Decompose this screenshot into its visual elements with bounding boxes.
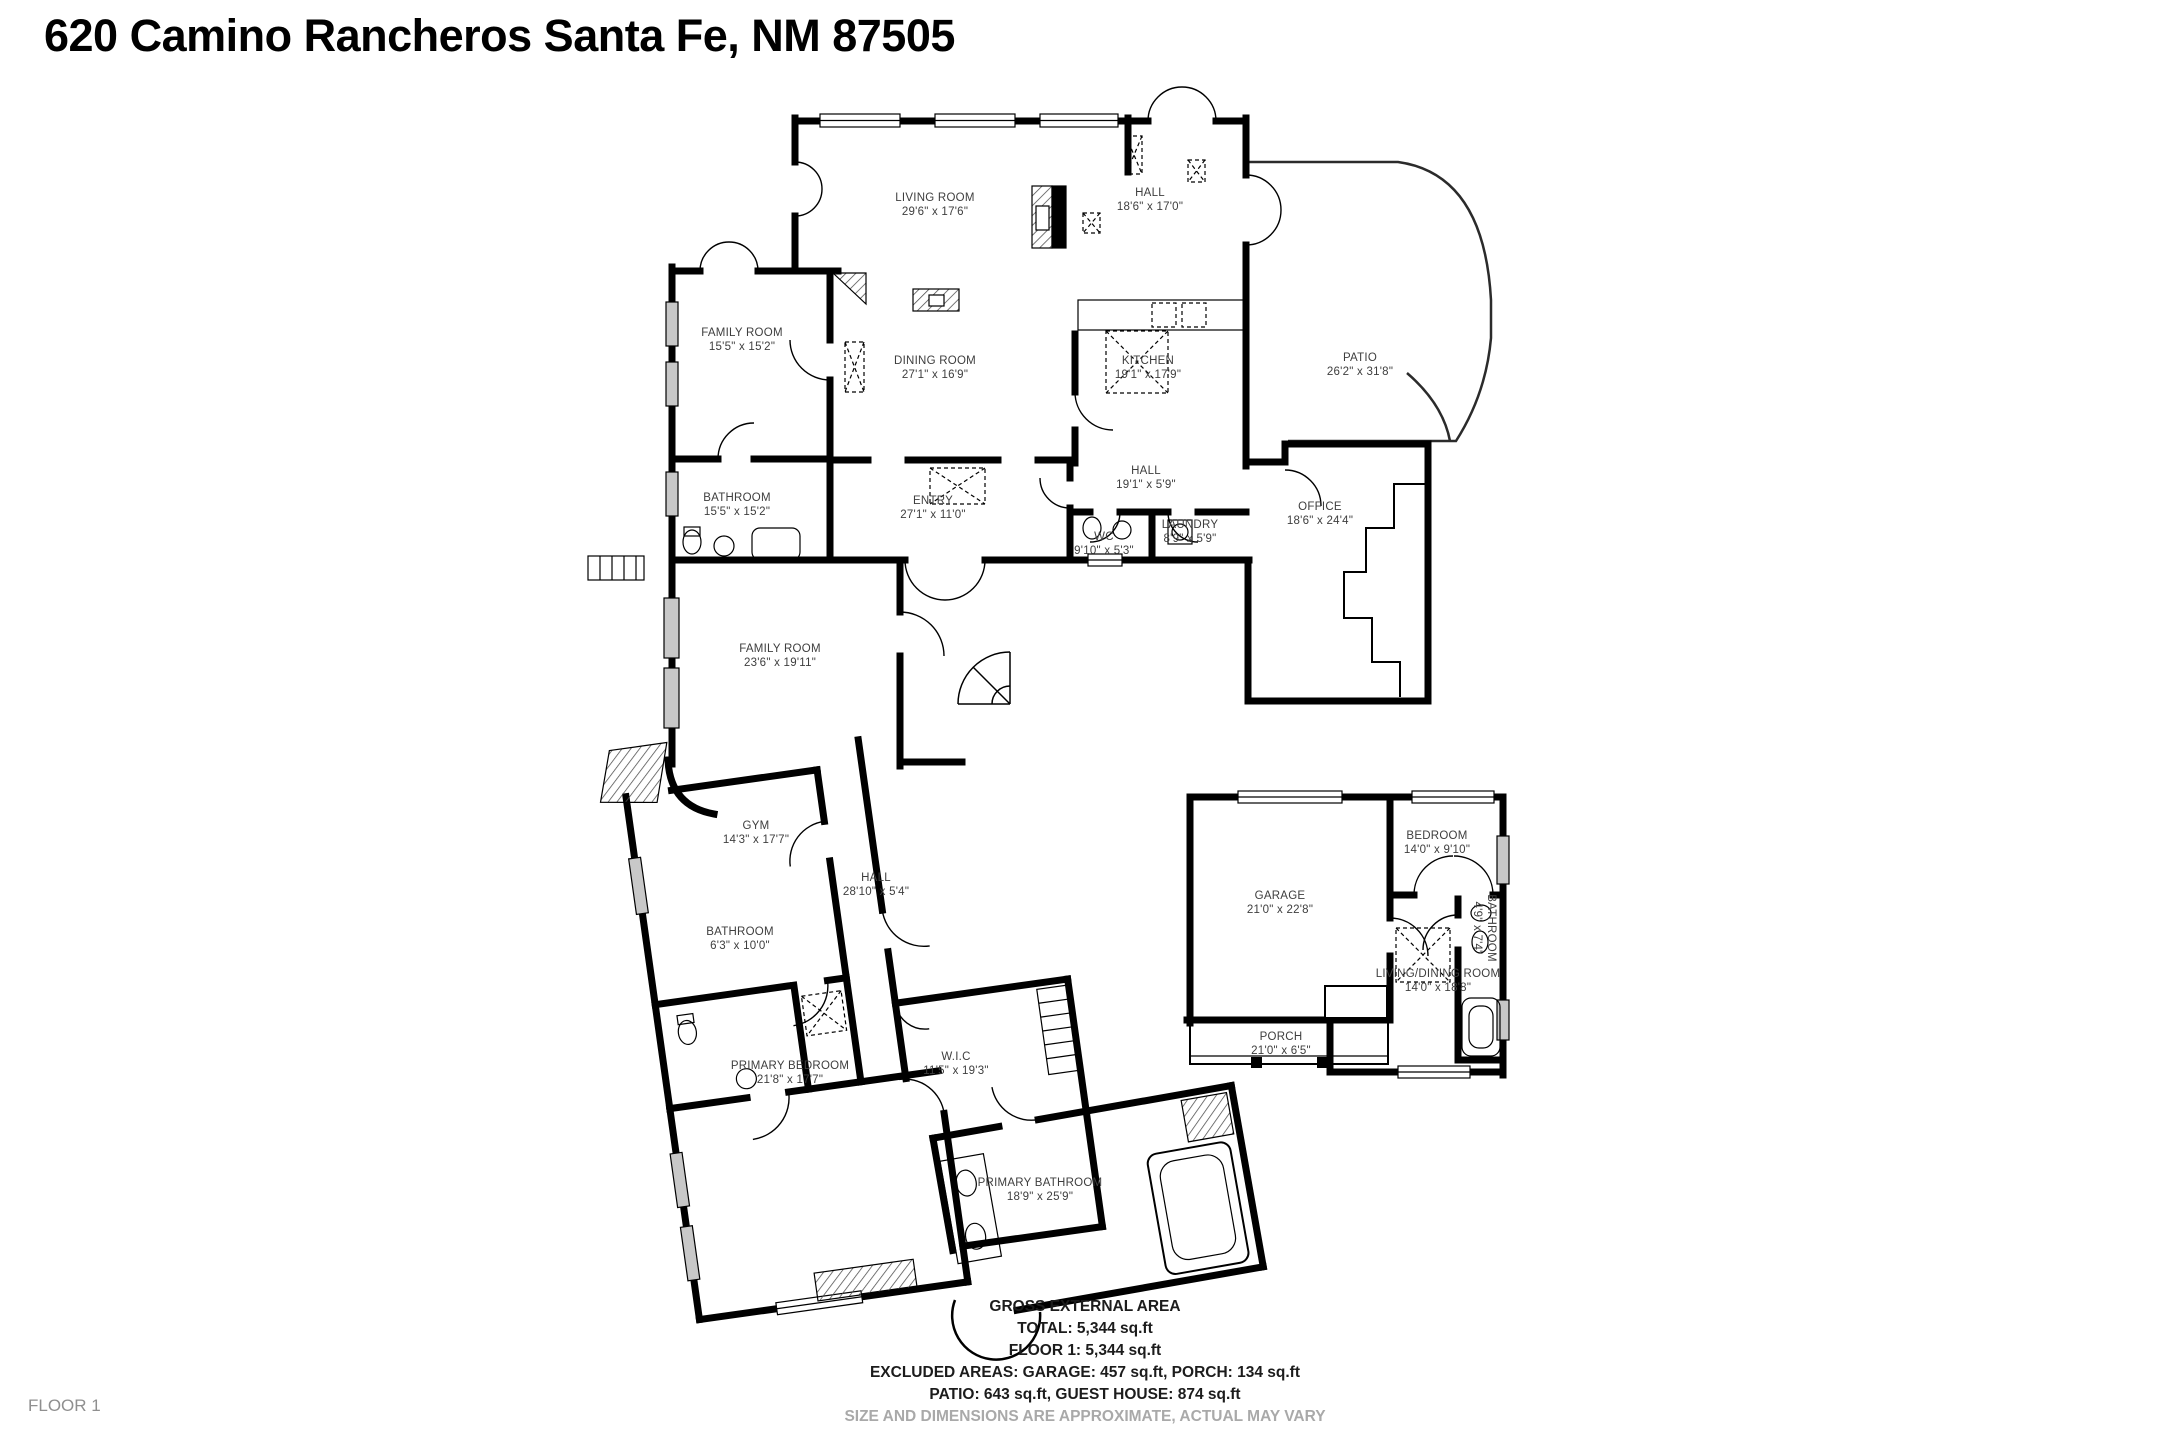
- summary-heading: GROSS EXTERNAL AREA: [735, 1296, 1435, 1318]
- side-steps: [588, 556, 644, 580]
- floorplan-page: 620 Camino Rancheros Santa Fe, NM 87505: [0, 0, 2173, 1448]
- wc-fixtures: [1083, 517, 1131, 539]
- walls-layer: [668, 118, 1503, 1075]
- porch-outline: [1190, 1023, 1388, 1067]
- summary-total: TOTAL: 5,344 sq.ft: [735, 1318, 1435, 1340]
- summary-excluded-2: PATIO: 643 sq.ft, GUEST HOUSE: 874 sq.ft: [735, 1384, 1435, 1406]
- patio-outline: [1246, 162, 1491, 441]
- spiral-stair: [958, 652, 1010, 704]
- office-closet-steps: [1344, 484, 1428, 697]
- summary-floor1: FLOOR 1: 5,344 sq.ft: [735, 1340, 1435, 1362]
- guest-bath-fixtures: [1462, 905, 1500, 1056]
- bath-upper-fixtures: [683, 527, 800, 560]
- fireplace-family-corner: [833, 273, 866, 304]
- area-summary: GROSS EXTERNAL AREA TOTAL: 5,344 sq.ft F…: [735, 1296, 1435, 1428]
- windows-layer: [629, 114, 1509, 1326]
- summary-excluded: EXCLUDED AREAS: GARAGE: 457 sq.ft, PORCH…: [735, 1362, 1435, 1384]
- floor-label: FLOOR 1: [28, 1396, 101, 1416]
- fireplace-living: [1032, 186, 1066, 248]
- fixtures-layer: [588, 136, 1500, 1321]
- fireplace-dining: [913, 289, 959, 311]
- summary-disclaimer: SIZE AND DIMENSIONS ARE APPROXIMATE, ACT…: [735, 1406, 1435, 1428]
- floorplan-canvas: [0, 0, 2173, 1448]
